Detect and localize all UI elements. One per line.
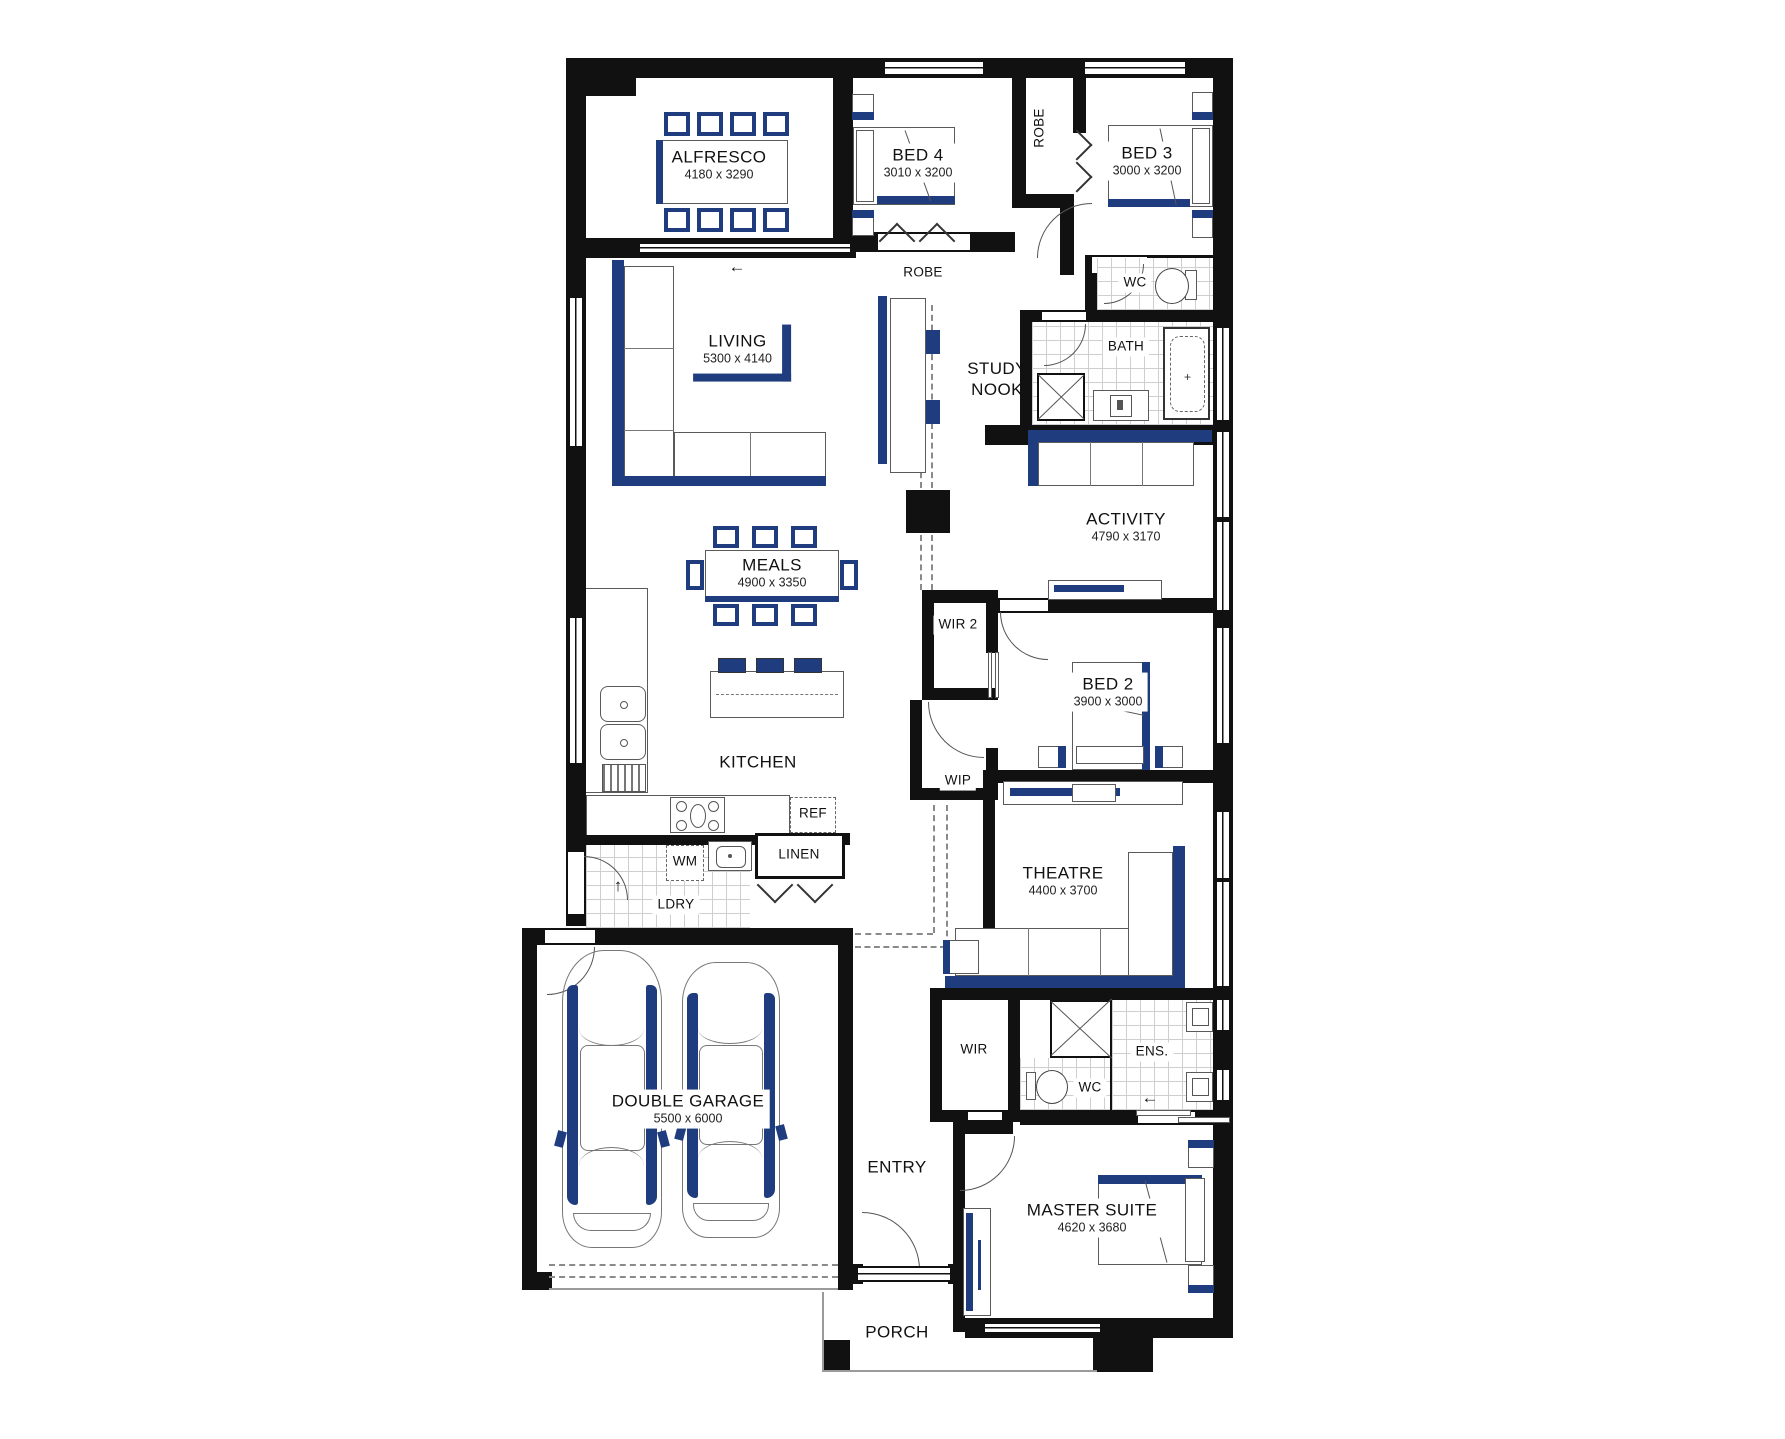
sliding-door bbox=[640, 242, 850, 254]
study-chair bbox=[926, 400, 940, 424]
wall bbox=[922, 590, 998, 603]
wall bbox=[1008, 1000, 1020, 1122]
car-rear-window bbox=[579, 1011, 644, 1046]
room-label-bath: BATH bbox=[1103, 338, 1149, 357]
room-label-wip: WIP bbox=[940, 772, 976, 791]
bifold-door bbox=[879, 223, 916, 260]
garage-door bbox=[549, 1264, 838, 1266]
chair bbox=[730, 112, 756, 136]
window bbox=[885, 60, 983, 76]
sofa-seat bbox=[1038, 442, 1194, 486]
ceiling-line bbox=[855, 946, 946, 948]
sink-drain bbox=[620, 739, 628, 747]
chair bbox=[752, 604, 778, 626]
burner bbox=[676, 801, 687, 812]
room-label-ens-wc: WC bbox=[1073, 1079, 1106, 1098]
room-label-meals: MEALS 4900 x 3350 bbox=[733, 554, 812, 593]
sofa-divider bbox=[624, 348, 674, 349]
door-arc-bed2 bbox=[1000, 612, 1048, 660]
island-overhang bbox=[716, 694, 838, 695]
wall bbox=[930, 988, 1008, 1000]
window bbox=[985, 1322, 1100, 1334]
window bbox=[1215, 882, 1231, 986]
room-label-wir2: WIR 2 bbox=[933, 616, 982, 635]
room-label-living: LIVING 5300 x 4140 bbox=[693, 325, 791, 382]
wall bbox=[906, 490, 950, 533]
stool bbox=[718, 658, 746, 673]
trough-drain bbox=[728, 854, 732, 858]
room-label-bed3: BED 3 3000 x 3200 bbox=[1108, 142, 1187, 181]
wall bbox=[1012, 78, 1026, 208]
front-door bbox=[858, 1266, 950, 1282]
stool bbox=[794, 658, 822, 673]
chair bbox=[791, 604, 817, 626]
side-table-trim bbox=[1192, 112, 1213, 120]
sofa-back bbox=[1173, 846, 1185, 988]
porch-post bbox=[822, 1340, 850, 1372]
side-table-trim bbox=[1188, 1285, 1214, 1293]
tv-unit-trim bbox=[978, 1240, 981, 1290]
dining-table-edge bbox=[705, 596, 839, 602]
window bbox=[1215, 432, 1231, 517]
chair bbox=[763, 208, 789, 232]
sofa-divider bbox=[1090, 442, 1091, 486]
porch-edge bbox=[822, 1370, 1097, 1372]
window bbox=[1215, 1070, 1231, 1100]
wall bbox=[983, 988, 1233, 1000]
sofa-front bbox=[945, 976, 1185, 988]
car-windshield bbox=[579, 1147, 644, 1184]
slider-door-master bbox=[1178, 1117, 1230, 1123]
room-label-kitchen: KITCHEN bbox=[719, 751, 796, 772]
chair bbox=[840, 560, 858, 590]
wall bbox=[983, 770, 995, 930]
cavity-door bbox=[988, 652, 992, 698]
study-chair bbox=[926, 330, 940, 354]
sofa-divider bbox=[750, 432, 751, 478]
side-table-trim bbox=[852, 112, 874, 120]
car-side bbox=[567, 985, 578, 1205]
window bbox=[1215, 628, 1231, 743]
bed-pillows bbox=[1185, 1178, 1205, 1262]
car-bonnet bbox=[693, 1203, 769, 1221]
car-bonnet bbox=[573, 1213, 651, 1231]
chair bbox=[664, 208, 690, 232]
bed-trim bbox=[877, 196, 955, 204]
room-label-wir: WIR bbox=[955, 1041, 992, 1060]
wall bbox=[910, 700, 922, 800]
sofa-front bbox=[624, 476, 826, 486]
door-arc-hall bbox=[960, 1136, 1015, 1191]
porch-edge bbox=[822, 1292, 824, 1372]
room-label-theatre: THEATRE 4400 x 3700 bbox=[1023, 863, 1104, 900]
window bbox=[568, 298, 584, 446]
room-label-master: MASTER SUITE 4620 x 3680 bbox=[1022, 1199, 1162, 1238]
ceiling-line bbox=[920, 535, 922, 590]
window bbox=[1215, 812, 1231, 878]
wall bbox=[1073, 78, 1086, 133]
basin-bowl bbox=[1192, 1078, 1209, 1096]
wall bbox=[953, 1122, 1013, 1134]
car-mirror bbox=[775, 1124, 788, 1141]
burner bbox=[708, 801, 719, 812]
side-table-trim bbox=[1058, 746, 1066, 768]
wall bbox=[522, 928, 537, 1290]
porch-pier bbox=[1093, 1330, 1153, 1372]
ldry-arrow: ↑ bbox=[614, 876, 623, 896]
door-arc-front bbox=[862, 1212, 920, 1270]
window bbox=[1215, 522, 1231, 610]
wall bbox=[930, 1000, 942, 1110]
toilet-bowl bbox=[1155, 268, 1189, 304]
window bbox=[1215, 328, 1231, 420]
sofa-seat bbox=[624, 266, 674, 478]
study-desk bbox=[890, 298, 926, 473]
room-label-entry: ENTRY bbox=[867, 1156, 926, 1177]
chair bbox=[686, 560, 704, 590]
side-table-trim bbox=[1188, 1140, 1214, 1148]
room-label-garage: DOUBLE GARAGE 5500 x 6000 bbox=[607, 1090, 770, 1129]
sofa-divider bbox=[1028, 928, 1029, 976]
ceiling-line bbox=[855, 933, 933, 935]
room-label-robe-hall: ROBE bbox=[898, 264, 947, 283]
door-arc-wip bbox=[928, 702, 984, 758]
ceiling-line bbox=[933, 805, 935, 933]
door-arc-bed3 bbox=[1037, 203, 1092, 258]
bed-pillows bbox=[1192, 128, 1210, 204]
label-ref: REF bbox=[799, 806, 827, 823]
sofa-arm bbox=[1028, 442, 1038, 486]
bath-tap-icon: + bbox=[1184, 370, 1191, 384]
door-opening bbox=[968, 1112, 1002, 1120]
chair bbox=[791, 526, 817, 548]
wall bbox=[566, 58, 586, 926]
sofa-seat bbox=[1128, 852, 1173, 976]
room-label-robe-beds: ROBE bbox=[1031, 103, 1050, 152]
sofa-back bbox=[612, 260, 624, 486]
bifold-door bbox=[1061, 129, 1092, 160]
tv-unit-trim bbox=[966, 1213, 973, 1311]
door-opening bbox=[1000, 600, 1048, 611]
room-label-porch: PORCH bbox=[865, 1321, 928, 1342]
burner bbox=[690, 804, 706, 828]
cavity-door bbox=[995, 652, 999, 698]
room-label-ldry: LDRY bbox=[653, 896, 700, 915]
car-mirror bbox=[657, 1130, 670, 1148]
floor-plan: ← ↑ ← bbox=[0, 0, 1785, 1439]
chair bbox=[763, 112, 789, 136]
room-label-activity: ACTIVITY 4790 x 3170 bbox=[1086, 509, 1166, 546]
sofa-divider bbox=[624, 430, 674, 431]
sink-drain bbox=[620, 701, 628, 709]
chair bbox=[697, 112, 723, 136]
car-mirror bbox=[554, 1130, 567, 1148]
toilet-bowl bbox=[1036, 1070, 1068, 1104]
chair bbox=[752, 526, 778, 548]
wall bbox=[922, 603, 934, 700]
wall bbox=[922, 688, 998, 700]
sofa-back bbox=[1028, 430, 1212, 442]
chair bbox=[697, 208, 723, 232]
room-label-ens: ENS. bbox=[1131, 1043, 1174, 1062]
stool bbox=[756, 658, 784, 673]
ceiling-line bbox=[931, 535, 933, 590]
cabinet-trim bbox=[1054, 585, 1124, 592]
wall bbox=[833, 78, 853, 250]
side-table-trim bbox=[1192, 210, 1213, 218]
door-opening bbox=[1042, 312, 1086, 320]
slider-door-master bbox=[1136, 1110, 1191, 1116]
room-label-bed2: BED 2 3900 x 3000 bbox=[1069, 673, 1148, 712]
sofa-divider bbox=[1100, 928, 1101, 976]
chair bbox=[730, 208, 756, 232]
window bbox=[568, 618, 584, 763]
bed-pillows bbox=[856, 130, 874, 202]
bed-pillows bbox=[1076, 746, 1144, 764]
car-rear-window bbox=[698, 1013, 762, 1044]
media-unit bbox=[878, 296, 887, 464]
drainer bbox=[602, 764, 646, 792]
window bbox=[1215, 1000, 1231, 1030]
ceiling-line bbox=[946, 805, 948, 946]
burner bbox=[708, 820, 719, 831]
chair bbox=[713, 526, 739, 548]
slider-arrow: ← bbox=[729, 257, 746, 277]
room-label-bed4: BED 4 3010 x 3200 bbox=[879, 144, 958, 183]
end-table-trim bbox=[943, 940, 950, 974]
basin-bowl bbox=[1192, 1008, 1209, 1026]
car-windshield bbox=[698, 1141, 762, 1176]
door-opening bbox=[568, 852, 584, 914]
wall bbox=[522, 1272, 552, 1290]
chair bbox=[713, 604, 739, 626]
side-table-trim bbox=[1155, 746, 1163, 768]
tv bbox=[1072, 784, 1116, 802]
bifold-door bbox=[1061, 161, 1092, 192]
tap-icon bbox=[1117, 400, 1123, 410]
toilet-icon bbox=[1026, 1072, 1036, 1100]
garage-door bbox=[549, 1276, 838, 1278]
wall bbox=[838, 928, 853, 1288]
garage-door-edge bbox=[549, 1288, 838, 1290]
wall bbox=[1012, 194, 1062, 208]
label-linen: LINEN bbox=[778, 847, 819, 864]
side-table-trim bbox=[852, 210, 874, 218]
ens-arrow: ← bbox=[1142, 1088, 1159, 1108]
chair bbox=[664, 112, 690, 136]
sofa-divider bbox=[1142, 442, 1143, 486]
bed-trim bbox=[1108, 199, 1190, 207]
door-opening bbox=[545, 930, 595, 943]
label-wm: WM bbox=[673, 854, 698, 871]
outdoor-table-edge bbox=[656, 140, 663, 204]
window bbox=[1085, 60, 1185, 76]
burner bbox=[676, 820, 687, 831]
room-label-alfresco: ALFRESCO 4180 x 3290 bbox=[667, 146, 772, 185]
bifold-door bbox=[919, 223, 956, 260]
room-label-wc: WC bbox=[1118, 274, 1151, 293]
room-label-study-nook: STUDY NOOK bbox=[967, 358, 1027, 401]
